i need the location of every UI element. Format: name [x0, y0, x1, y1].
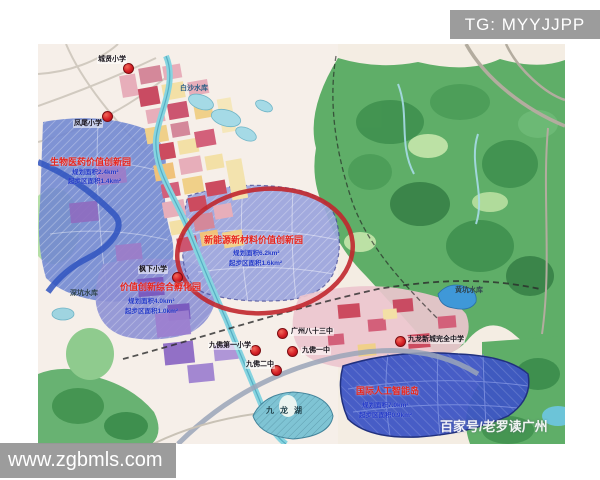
zone-area-line: 规划面积6.2km²: [233, 250, 280, 257]
school-label: 九龙新城完全中学: [407, 336, 465, 344]
reservoir-label: 白沙水库: [180, 85, 208, 93]
school-label: 城贤小学: [97, 56, 127, 64]
zone-area-line: 规划面积4.0km²: [128, 298, 175, 305]
zone-area-line: 起步区面积1.0km²: [125, 308, 178, 315]
reservoir-label: 深坑水库: [70, 290, 98, 298]
website-watermark: www.zgbmls.com: [0, 443, 176, 478]
school-marker: [395, 336, 406, 347]
school-label: 广州八十三中: [290, 328, 334, 336]
lake-label: 九龙湖: [266, 407, 308, 416]
zone-label-new-energy: 新能源新材料价值创新园: [204, 236, 303, 246]
school-marker: [277, 328, 288, 339]
zone-area-line: 起步区面积0.9km²: [359, 412, 412, 419]
school-label: 九佛二中: [245, 361, 275, 369]
zone-area-line: 规划面积7.0km²: [362, 402, 409, 409]
source-credit-watermark: 百家号/老罗读广州: [440, 416, 580, 435]
zone-label-ai: 国际人工智能岛: [356, 387, 419, 397]
school-label: 九佛一中: [301, 347, 331, 355]
planning-map: 城贤小学 凤尾小学 枫下小学 九佛第一小学 广州八十三中 九佛一中 九佛二中 九…: [38, 44, 565, 444]
school-label: 九佛第一小学: [208, 342, 252, 350]
zone-label-biomed: 生物医药价值创新园: [50, 158, 131, 168]
zone-area-line: 起步区面积1.6km²: [229, 260, 282, 267]
zone-area-line: 起步区面积1.4km²: [68, 178, 121, 185]
school-marker: [287, 346, 298, 357]
reservoir-label: 黄坑水库: [455, 287, 483, 295]
school-marker: [123, 63, 134, 74]
screenshot: 城贤小学 凤尾小学 枫下小学 九佛第一小学 广州八十三中 九佛一中 九佛二中 九…: [0, 0, 600, 480]
zone-label-incubator: 价值创新综合孵化园: [120, 283, 201, 293]
zone-area-line: 规划面积2.4km²: [72, 169, 119, 176]
school-marker: [102, 111, 113, 122]
school-label: 凤尾小学: [73, 120, 103, 128]
telegram-watermark: TG: MYYJJPP: [450, 10, 600, 39]
school-label: 枫下小学: [138, 266, 168, 274]
